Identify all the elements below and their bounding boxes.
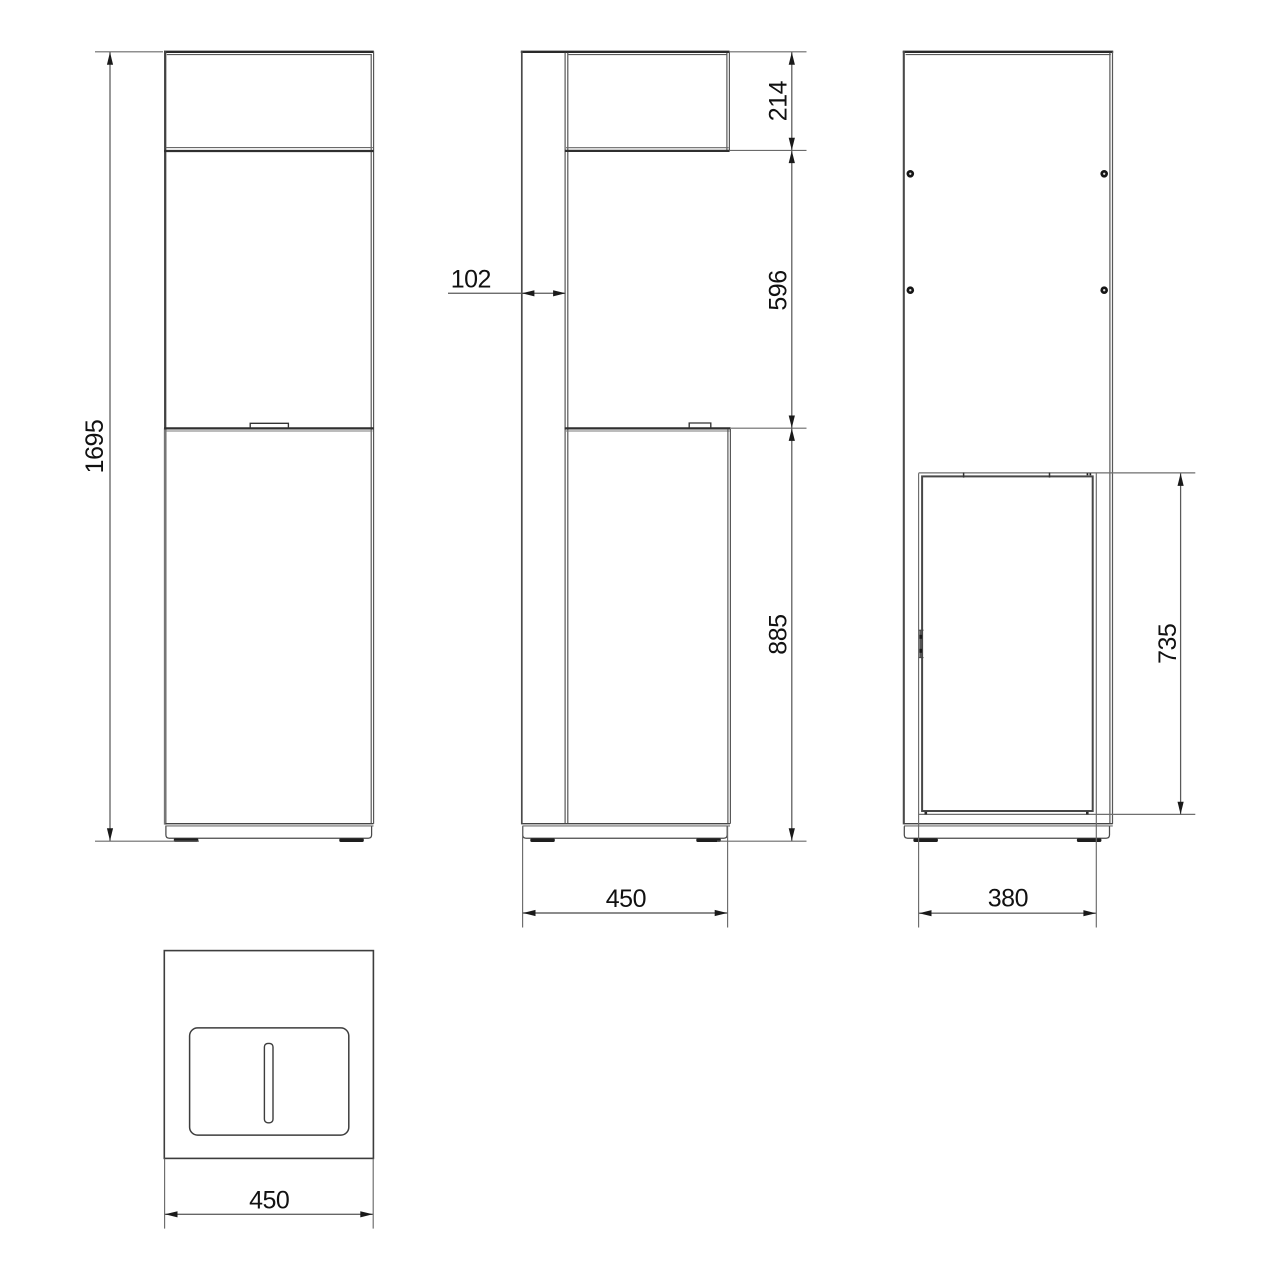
svg-text:214: 214: [764, 80, 792, 121]
svg-text:885: 885: [764, 614, 792, 654]
svg-text:596: 596: [764, 270, 792, 310]
svg-text:450: 450: [249, 1187, 289, 1215]
svg-text:1695: 1695: [81, 420, 109, 474]
svg-text:735: 735: [1154, 624, 1182, 664]
svg-text:380: 380: [988, 885, 1028, 913]
svg-text:450: 450: [606, 885, 646, 913]
svg-text:102: 102: [451, 265, 491, 293]
